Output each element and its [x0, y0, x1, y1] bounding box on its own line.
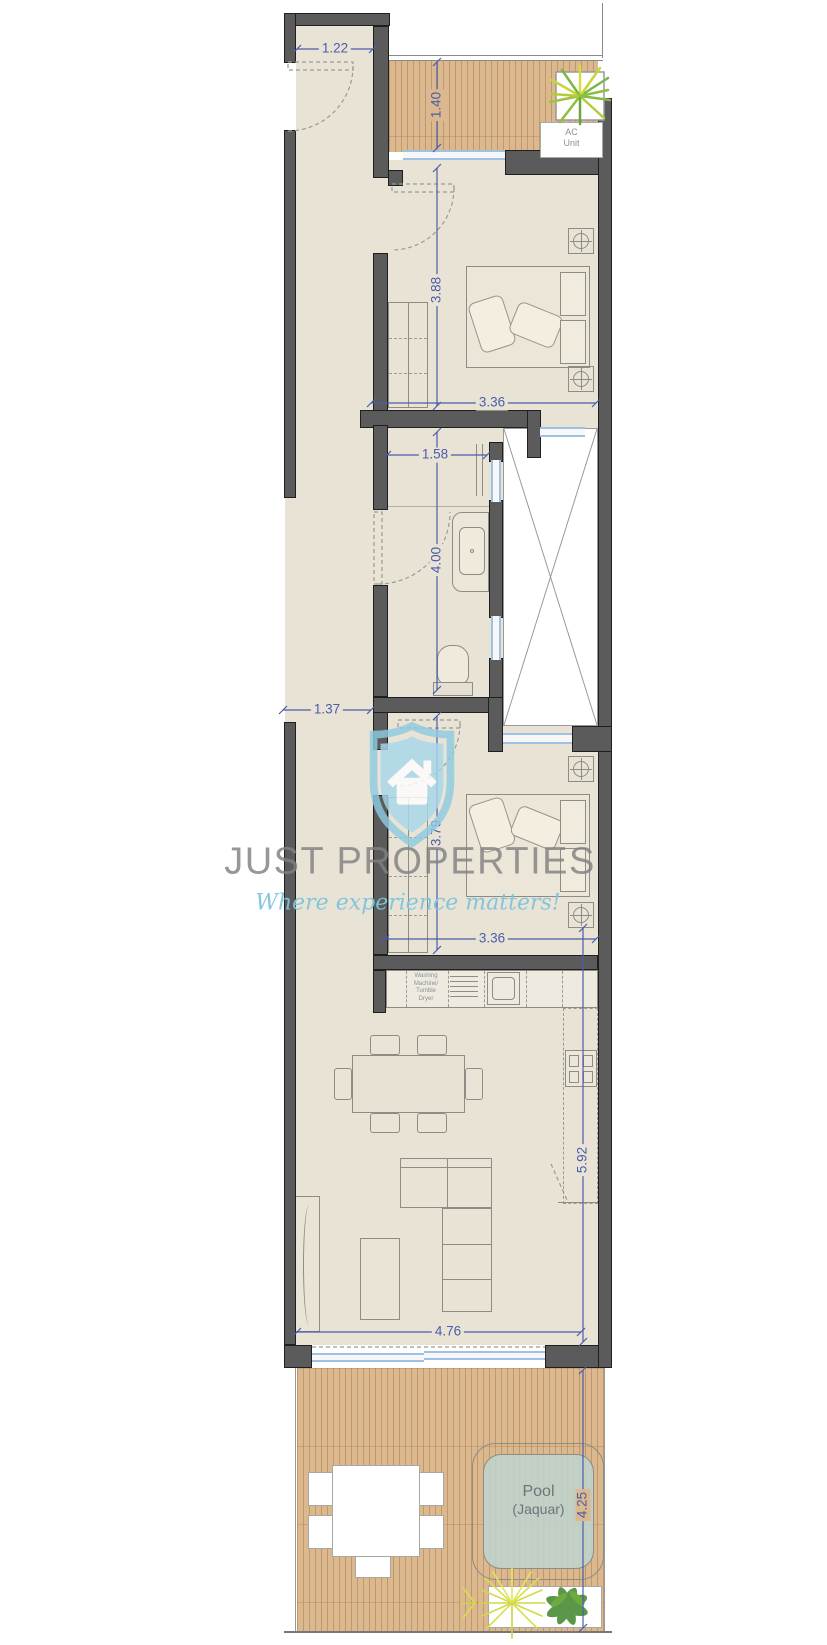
window: [491, 616, 501, 660]
plot-bottom-line: [284, 1631, 612, 1633]
tv-unit: [294, 1196, 320, 1332]
floor-plan: Washing Machine/ Tumble Dryer: [0, 0, 827, 1645]
wall: [284, 13, 296, 63]
outdoor-chair: [419, 1515, 444, 1549]
dim-bath-length: 4.00: [430, 544, 445, 576]
bed-1-headboard-cushion: [560, 320, 586, 364]
watermark-tagline: Where experience matters!: [255, 891, 560, 916]
outdoor-table: [332, 1465, 420, 1557]
window: [503, 733, 572, 744]
dining-chair: [334, 1068, 352, 1100]
coffee-table: [360, 1238, 400, 1320]
wall: [373, 697, 503, 713]
wall: [488, 697, 503, 752]
wall: [373, 970, 386, 1013]
wall: [388, 170, 403, 186]
shower-tray-line: [388, 506, 489, 507]
dim-entry-width: 1.22: [319, 42, 351, 57]
dim-hall-width: 1.37: [311, 703, 343, 718]
outdoor-chair: [308, 1515, 333, 1549]
ceiling-light-icon: [568, 228, 594, 254]
bed-2-headboard-cushion: [560, 800, 586, 844]
corridor-floor: [285, 160, 373, 1345]
dining-chair: [417, 1113, 447, 1133]
balcony-edge-line: [375, 55, 603, 61]
dim-living-length: 5.92: [576, 1144, 591, 1176]
wall: [489, 442, 503, 462]
dim-terrace-length: 4.25: [576, 1489, 591, 1521]
kitchen-sink: [487, 972, 520, 1005]
window: [403, 150, 505, 160]
wall: [489, 500, 503, 618]
outdoor-chair: [308, 1472, 333, 1506]
wall: [284, 130, 296, 498]
dim-balcony-depth: 1.40: [430, 89, 445, 121]
sliding-door: [424, 1351, 545, 1360]
wall: [373, 26, 389, 178]
watermark-brand: JUST PROPERTIES: [224, 841, 596, 884]
wall: [373, 425, 388, 510]
dining-chair: [465, 1068, 483, 1100]
outdoor-chair: [355, 1556, 391, 1578]
wall: [527, 410, 541, 458]
planter-box: [488, 1586, 602, 1628]
hob: [565, 1050, 597, 1087]
terrace-left-edge: [295, 1368, 296, 1631]
terrace-right-edge: [604, 1368, 605, 1631]
wall: [373, 712, 388, 750]
ceiling-light-icon: [568, 366, 594, 392]
shower-screen: [476, 444, 483, 496]
wall: [373, 955, 598, 970]
ceiling-light-icon: [568, 756, 594, 782]
dining-chair: [417, 1035, 447, 1055]
wall: [373, 585, 388, 697]
sofa-chaise: [400, 1158, 492, 1208]
dim-bedroom1-width: 3.36: [476, 396, 508, 411]
wall: [284, 722, 296, 1345]
dim-bath-width: 1.58: [419, 448, 451, 463]
dim-living-width: 4.76: [432, 1325, 464, 1340]
void-shaft: [503, 428, 598, 726]
dining-chair: [370, 1035, 400, 1055]
sliding-door: [312, 1353, 424, 1362]
toilet-bowl: [437, 645, 469, 685]
ceiling-light-icon: [568, 902, 594, 928]
wall: [284, 1345, 312, 1368]
plot-edge-line-top: [602, 3, 603, 58]
appliance-front-line: [558, 1202, 598, 1203]
sink-drain: [470, 549, 474, 553]
window: [540, 427, 585, 437]
toilet-tank: [433, 682, 473, 696]
window: [491, 460, 501, 502]
wall: [373, 253, 388, 425]
outdoor-chair: [419, 1472, 444, 1506]
bed-1-headboard-cushion: [560, 272, 586, 316]
ac-unit-box: AC Unit: [540, 122, 603, 158]
sofa-seat: [442, 1208, 492, 1312]
wardrobe-1: [388, 302, 428, 408]
dining-table: [352, 1055, 465, 1113]
wall: [572, 726, 612, 752]
wall: [286, 13, 390, 26]
washer-label: Washing Machine/ Tumble Dryer: [405, 973, 447, 1003]
dim-bedroom2-width: 3.36: [476, 932, 508, 947]
dim-bedroom1-length: 3.88: [430, 274, 445, 306]
dish-rack: [450, 976, 478, 1001]
dining-chair: [370, 1113, 400, 1133]
